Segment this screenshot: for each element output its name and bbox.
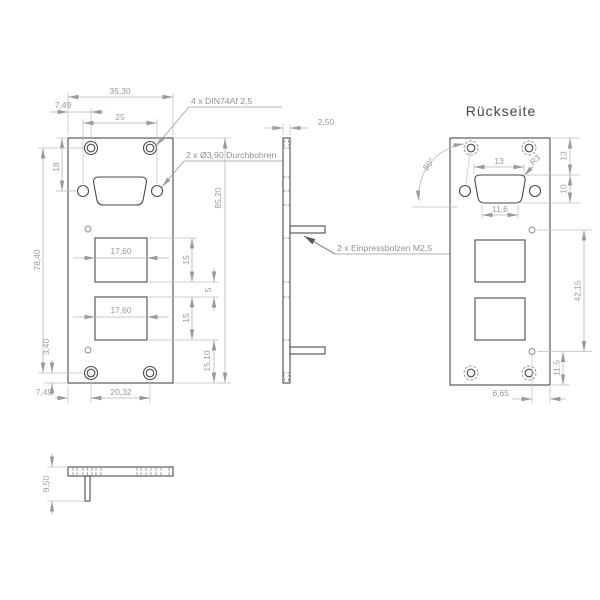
dim-text: 7,49 bbox=[55, 100, 72, 110]
dim-text: 17,60 bbox=[110, 305, 132, 315]
dim-front-edge-to-hole-top: 7,49 bbox=[50, 100, 105, 141]
dim-text: 13 bbox=[559, 151, 569, 161]
bottom-view: 9,50 bbox=[41, 453, 173, 515]
dim-text: 11,6 bbox=[492, 204, 508, 214]
press-in-studs-note: 2 x Einpressbolzen M2,5 bbox=[337, 243, 432, 253]
dim-text: 10 bbox=[559, 184, 569, 194]
dim-text: 7,49 bbox=[36, 387, 53, 397]
dim-text: 85,20 bbox=[213, 187, 223, 209]
dim-side-thickness: 2,50 bbox=[265, 117, 335, 135]
dim-text: 6,65 bbox=[492, 388, 509, 398]
bottom-stud bbox=[85, 476, 90, 501]
dim-text: 18 bbox=[51, 162, 61, 172]
dim-text: 3,40 bbox=[41, 338, 51, 355]
dim-text: 15 bbox=[181, 255, 191, 265]
dim-text: 17,60 bbox=[110, 246, 132, 256]
technical-drawing: 35,30 7,49 25 4 x DIN74Af 2,5 2 x Ø3,90 … bbox=[0, 0, 600, 600]
dim-back-stud-to-bottom: 11,5 bbox=[552, 352, 571, 386]
dim-front-rect-to-bottom: 15,10 bbox=[202, 340, 214, 383]
dim-text: 20,32 bbox=[110, 387, 132, 397]
side-plate-outline bbox=[283, 138, 290, 383]
label-press-in-studs: 2 x Einpressbolzen M2,5 bbox=[304, 236, 472, 254]
dim-text: 25 bbox=[115, 112, 125, 122]
countersink-note: 4 x DIN74Af 2,5 bbox=[191, 96, 252, 106]
dim-text: 42,15 bbox=[573, 280, 583, 302]
dim-text: 5 bbox=[203, 287, 213, 292]
dim-text: 11,5 bbox=[552, 360, 562, 376]
dim-text: 2,50 bbox=[318, 117, 335, 127]
dim-text: 13 bbox=[494, 156, 504, 166]
label-countersink: 4 x DIN74Af 2,5 bbox=[156, 96, 282, 146]
bottom-plate-outline bbox=[68, 467, 173, 476]
dim-text: 78,40 bbox=[32, 249, 42, 271]
side-stud-upper bbox=[290, 226, 325, 233]
front-view: 35,30 7,49 25 4 x DIN74Af 2,5 2 x Ø3,90 … bbox=[32, 86, 285, 403]
cad-drawing-page: 35,30 7,49 25 4 x DIN74Af 2,5 2 x Ø3,90 … bbox=[0, 0, 600, 600]
dim-bottom-overall-height: 9,50 bbox=[41, 453, 83, 515]
dim-text: 15 bbox=[181, 313, 191, 323]
back-view: Rückseite 80° 13 R3 bbox=[412, 103, 592, 403]
through-hole-note: 2 x Ø3,90 Durchbohren bbox=[186, 150, 276, 160]
side-stud-lower bbox=[290, 347, 325, 354]
back-view-title: Rückseite bbox=[466, 103, 536, 119]
label-through-holes: 2 x Ø3,90 Durchbohren bbox=[162, 150, 285, 187]
dim-text: 15,10 bbox=[202, 350, 212, 372]
dim-text: 35,30 bbox=[109, 86, 131, 96]
side-view: 2,50 2 x Einpressbolzen M2,5 bbox=[265, 117, 472, 383]
dim-text: 9,50 bbox=[41, 475, 51, 492]
